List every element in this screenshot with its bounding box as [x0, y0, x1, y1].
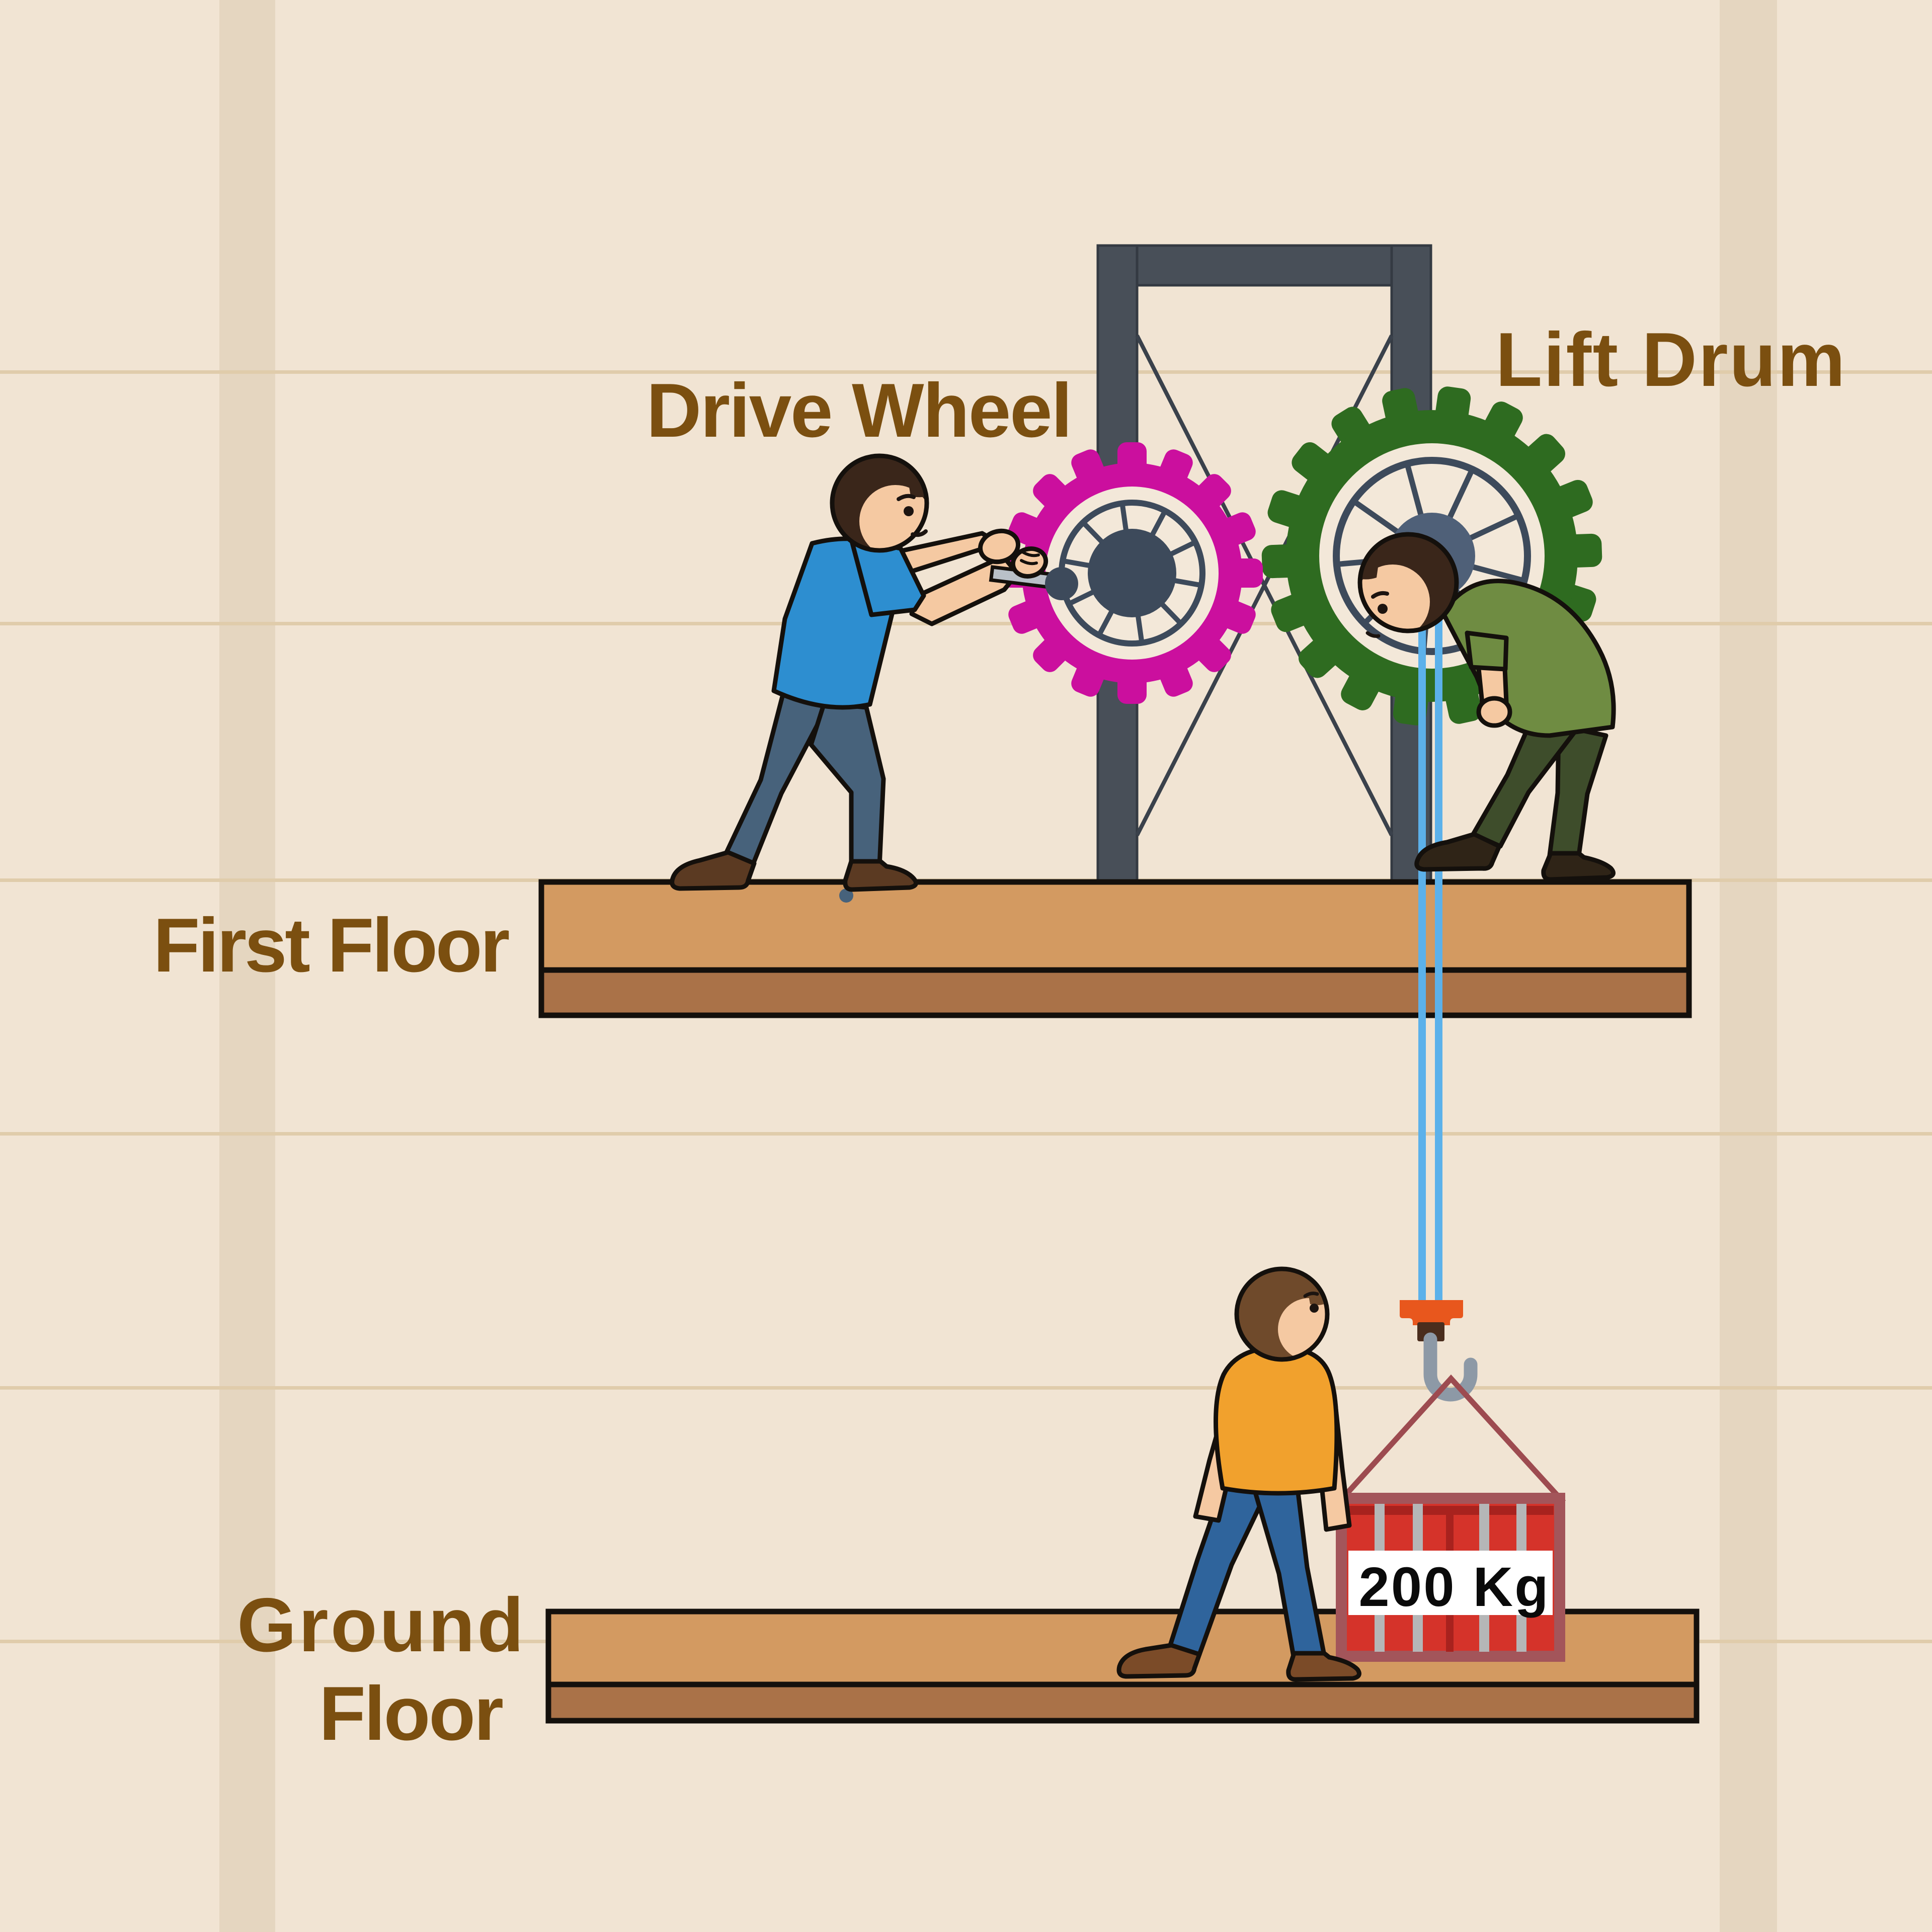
svg-text:200 Kg: 200 Kg — [1359, 1556, 1549, 1618]
svg-text:Floor: Floor — [319, 1671, 504, 1756]
svg-text:Lift Drum: Lift Drum — [1496, 317, 1845, 403]
svg-text:First Floor: First Floor — [153, 903, 510, 988]
svg-text:Ground: Ground — [237, 1582, 524, 1668]
svg-text:Drive Wheel: Drive Wheel — [647, 368, 1073, 453]
